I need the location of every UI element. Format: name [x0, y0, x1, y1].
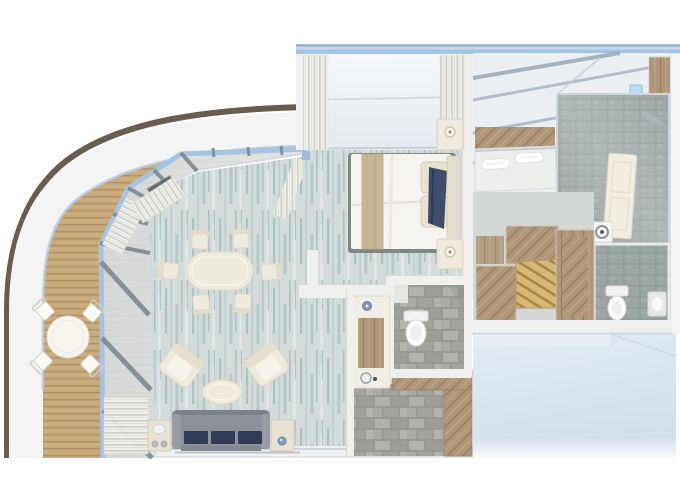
vanity — [475, 127, 557, 192]
double-bed — [348, 153, 460, 253]
sofa-cushion — [211, 431, 235, 444]
toilet-room — [594, 244, 669, 328]
entrance-area — [346, 276, 472, 456]
wall-stub — [307, 250, 318, 290]
curtain-panel — [104, 396, 148, 454]
hand-basin — [648, 292, 666, 316]
wardrobe-frame-inner — [562, 238, 588, 316]
vanity-backsplash — [475, 127, 555, 149]
desk-accessory — [373, 377, 377, 381]
bedroom-left-glass — [296, 54, 303, 150]
suite-floor-plan — [0, 0, 680, 486]
sofa-seat-front — [181, 446, 261, 451]
wardrobe-cabinet — [476, 236, 504, 264]
dining-chair — [231, 228, 250, 248]
wardrobe-cabinet — [476, 266, 516, 322]
page-margin — [0, 459, 680, 486]
balcony-table — [47, 316, 89, 358]
dining-chair — [192, 294, 211, 314]
sofa — [172, 410, 270, 451]
nightstand — [437, 119, 463, 150]
ship-structure-wall — [473, 334, 676, 458]
pale-wall-fade — [473, 438, 676, 458]
throw-fold — [432, 170, 433, 224]
duvet-crease — [390, 154, 392, 249]
nightstand — [437, 239, 463, 269]
dining-chair — [191, 230, 210, 250]
hall-stone-floor — [354, 384, 446, 456]
sofa-armrest — [261, 414, 270, 449]
desk-wood-top — [358, 318, 384, 368]
headboard — [447, 156, 460, 240]
bed-runner-stripe — [362, 154, 383, 249]
living-hall-wall — [346, 290, 354, 456]
washer-appliance — [592, 222, 612, 242]
hall-wood-band — [444, 390, 472, 456]
blue-lamp — [278, 437, 286, 445]
sofa-cushion — [238, 431, 262, 444]
dining-chair — [261, 262, 282, 282]
toilet — [404, 311, 428, 346]
writing-desk — [352, 296, 390, 388]
dining-chair — [158, 261, 179, 281]
wardrobe-bottom-wall — [444, 320, 672, 334]
top-wall-highlight — [296, 47, 680, 50]
wc-shelf — [394, 285, 408, 303]
toilet — [606, 286, 628, 320]
sofa-armrest — [172, 414, 181, 449]
side-table — [271, 420, 294, 451]
navy-throw — [428, 167, 447, 229]
table-lamp — [153, 424, 165, 434]
wardrobe-shelf-unit — [506, 226, 558, 264]
dining-chair — [233, 293, 252, 313]
bathroom-right-wall — [670, 53, 680, 334]
guest-wc — [386, 276, 472, 378]
bedroom-curtain — [303, 55, 328, 150]
side-table — [148, 420, 171, 451]
sofa-cushion — [184, 431, 208, 444]
pale-wall-highlight — [473, 334, 610, 346]
